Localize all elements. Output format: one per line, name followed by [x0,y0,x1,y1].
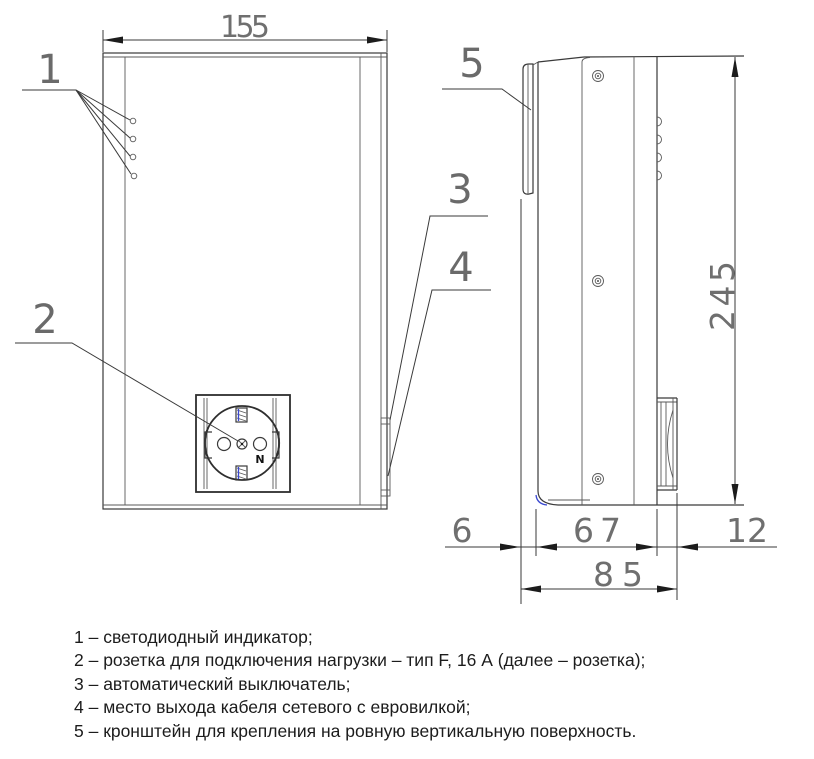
led-bumps-side [657,117,662,180]
callout-1-led: 1 [37,47,62,93]
legend: 1 – светодиодный индикатор; 2 – розетка … [74,626,774,743]
earth-clip-top [236,408,247,422]
earth-clip-bottom [236,466,247,480]
pin-hole-right [254,438,267,451]
dim-body-depth: 67 [573,511,621,550]
technical-drawing-page: N [0,0,814,759]
dim-height: 245 [703,261,742,331]
center-screw [237,439,247,449]
callout-3-breaker: 3 [447,167,472,213]
dim-total-depth: 85 [593,555,643,594]
legend-item-4: 4 – место выхода кабеля сетевого с евров… [74,696,774,719]
legend-item-1: 1 – светодиодный индикатор; [74,626,774,649]
pin-hole-left [218,438,231,451]
callout-2-socket: 2 [32,297,57,343]
callout-5-bracket: 5 [459,41,484,87]
drawing-canvas: N [0,0,814,615]
legend-item-5: 5 – кронштейн для крепления на ровную ве… [74,720,774,743]
breaker-tab [381,418,390,496]
dim-bracket-depth: 6 [452,511,473,550]
case-screws [593,71,604,485]
socket-side-protrusion [657,398,677,490]
legend-item-3: 3 – автоматический выключатель; [74,673,774,696]
dim-socket-protrusion: 12 [726,511,768,550]
callout-numbers: 1 2 3 4 5 [32,41,484,343]
legend-item-2: 2 – розетка для подключения нагрузки – т… [74,649,774,672]
dimensions: 155 245 6 67 12 85 [103,10,777,604]
mounting-bracket [523,62,538,194]
socket: N [196,395,290,492]
dim-width: 155 [220,10,270,45]
callout-4-cable-exit: 4 [448,245,473,291]
socket-neutral-label: N [255,453,264,466]
led-indicators [130,118,137,179]
front-view: N [103,53,390,509]
